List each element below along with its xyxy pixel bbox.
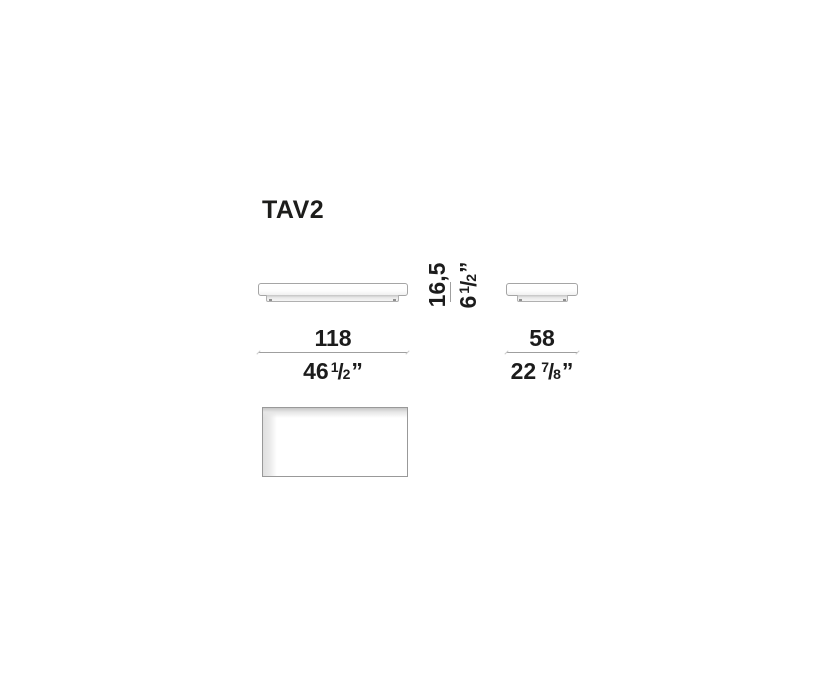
width-inch-value: 461/2” [258, 355, 408, 387]
depth-dimension-line [506, 352, 578, 353]
top-plan-view [262, 407, 408, 477]
height-cm-value: 16,5 [426, 263, 449, 308]
side-right-foot-mark [563, 299, 566, 301]
width-dimension: 118 461/2” [258, 327, 408, 387]
fraction-denominator: 2 [343, 366, 351, 382]
base-front-profile [266, 295, 399, 302]
depth-inch-whole: 22 [511, 358, 537, 384]
technical-drawing-canvas: TAV2 118 461/2” 58 227/8” 16,5 61/2” [0, 0, 840, 679]
product-code: TAV2 [262, 196, 324, 225]
base-side-profile [517, 295, 568, 302]
fraction-numerator: 1 [456, 286, 472, 294]
width-cm-value: 118 [258, 327, 408, 350]
height-inch-fraction: 1/2 [455, 274, 481, 294]
inch-mark: ” [455, 262, 481, 274]
side-left-foot-mark [519, 299, 522, 301]
depth-inch-fraction: 7/8 [541, 358, 561, 384]
fraction-denominator: 8 [553, 366, 561, 382]
width-dimension-line [258, 352, 408, 353]
depth-dimension: 58 227/8” [506, 327, 578, 387]
front-right-foot-mark [393, 299, 396, 301]
width-inch-fraction: 1/2 [331, 358, 351, 384]
depth-inch-value: 227/8” [506, 355, 578, 387]
depth-cm-value: 58 [506, 327, 578, 350]
fraction-denominator: 2 [463, 274, 479, 282]
height-inch-whole: 6 [455, 296, 481, 309]
height-inch-value: 61/2” [452, 262, 484, 309]
front-left-foot-mark [269, 299, 272, 301]
height-dimension-line [450, 282, 451, 302]
height-dimension: 16,5 61/2” [427, 257, 483, 313]
inch-mark: ” [351, 358, 363, 384]
width-inch-whole: 46 [303, 358, 329, 384]
inch-mark: ” [562, 358, 574, 384]
height-dimension-rotated-block: 16,5 61/2” [427, 257, 483, 313]
